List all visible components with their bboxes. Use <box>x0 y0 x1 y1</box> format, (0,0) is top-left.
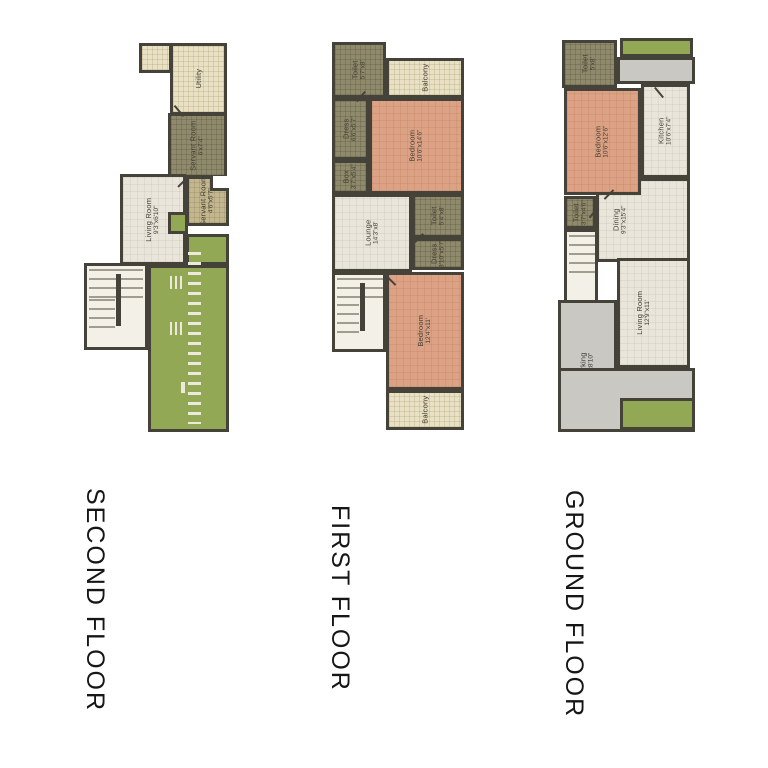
room-label: Dress 6'6"x5'7" <box>342 117 360 142</box>
room-living: Living Room 12'9"x11' <box>617 258 690 368</box>
room-label: Servant Room 6'x7'4" <box>189 120 207 170</box>
room-bedroom-1: Bedroom 10'6"x14'6" <box>369 98 464 194</box>
staircase <box>332 272 386 352</box>
stair-flight <box>337 304 359 336</box>
room-label: Bedroom 10'6"x12'6" <box>594 125 612 157</box>
stair-flight <box>569 235 595 279</box>
planter-box <box>168 212 188 234</box>
vent-grille <box>170 276 182 289</box>
lawn-top <box>620 38 693 57</box>
staircase <box>564 229 598 308</box>
room-label: Balcony <box>420 64 429 92</box>
room-label: Toilet 3'7"x4'6" <box>571 200 589 225</box>
room-kitchen: Kitchen 10'6"x7'4" <box>641 84 690 178</box>
room-label: Utility <box>194 69 203 89</box>
room-label: Living Room 12'9"x11' <box>635 291 653 335</box>
room-bedroom-2: Bedroom 12'4"x11' <box>386 272 464 390</box>
pergola-slats <box>188 252 201 424</box>
wall-notch <box>210 176 229 191</box>
vent-grille <box>170 322 182 335</box>
side-paving <box>617 57 695 84</box>
floor-plans-canvas: Utility Servant Room 6'x7'4" Living Room… <box>0 0 768 768</box>
room-bedroom: Bedroom 10'6"x12'6" <box>564 88 641 195</box>
stair-divider <box>116 274 121 326</box>
room-label: Living Room 9'3"x6'10" <box>144 198 162 242</box>
utility-wing <box>139 43 172 73</box>
first-floor-plan: Toilet 5'7"x8' Balcony Dress 6'6"x5'7" B… <box>330 36 470 432</box>
room-label: Kitchen 10'6"x7'4" <box>657 117 675 145</box>
lawn-bottom <box>620 398 695 430</box>
room-label: Bedroom 12'4"x11' <box>416 315 434 347</box>
room-label: Balcony <box>420 396 429 424</box>
second-floor-title: SECOND FLOOR <box>80 488 109 712</box>
room-servant-1: Servant Room 6'x7'4" <box>168 113 227 178</box>
stair-flight <box>89 299 115 333</box>
room-label: Bedroom 10'6"x14'6" <box>408 130 426 162</box>
room-toilet-1: Toilet 5'x8' <box>562 40 617 88</box>
room-label: Toilet 5'4"x8' <box>429 207 447 226</box>
first-floor-title: FIRST FLOOR <box>325 505 354 692</box>
room-toilet-2: Toilet 5'4"x8' <box>412 194 464 238</box>
room-dress-1: Dress 6'6"x5'7" <box>332 98 369 160</box>
room-label: Dining 9'3"x15'4" <box>612 206 630 234</box>
room-label: Toilet 5'x8' <box>581 55 599 74</box>
second-floor-plan: Utility Servant Room 6'x7'4" Living Room… <box>84 36 232 432</box>
stair-divider <box>360 283 365 331</box>
ground-floor-plan: Dining 9'3"x15'4" Toilet 5'x8' Bedroom 1… <box>558 36 698 432</box>
room-box: Box 3'7"x5'4" <box>332 160 369 194</box>
ground-floor-title: GROUND FLOOR <box>559 490 588 718</box>
room-dress-2: Dress 3'10"x5'7" <box>412 238 464 270</box>
room-label: Dress 3'10"x5'7" <box>429 240 447 268</box>
staircase <box>84 263 148 350</box>
room-balcony-1: Balcony <box>386 58 464 98</box>
room-label: Lounge 14'3"x8' <box>363 220 381 246</box>
room-label: Box 3'7"x5'4" <box>342 165 360 190</box>
lawn-slat <box>181 382 185 393</box>
room-utility: Utility <box>170 43 227 115</box>
room-label: Toilet 5'7"x8' <box>350 61 368 80</box>
room-balcony-2: Balcony <box>386 390 464 430</box>
room-lounge: Lounge 14'3"x8' <box>332 194 412 272</box>
room-toilet-1: Toilet 5'7"x8' <box>332 42 386 98</box>
